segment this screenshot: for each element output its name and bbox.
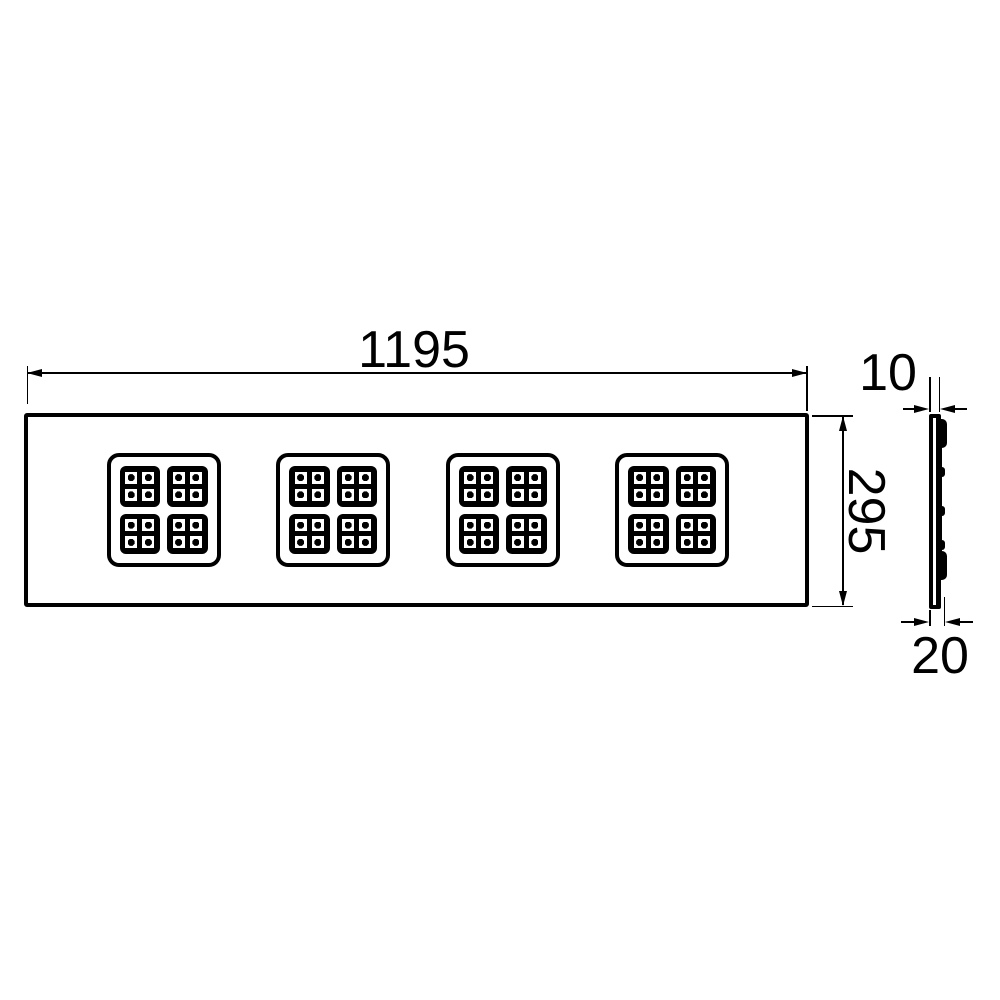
led-star-icon (531, 491, 538, 498)
led-dot (342, 472, 354, 484)
led-star-icon (636, 539, 643, 546)
led-star-icon (701, 539, 708, 546)
led-dot (529, 472, 541, 484)
led-star-icon (484, 491, 491, 498)
led-star-icon (314, 522, 321, 529)
led-dot (295, 536, 307, 548)
led-dot (529, 489, 541, 501)
led-star-icon (175, 474, 182, 481)
led-star-icon (362, 474, 369, 481)
led-dot (481, 489, 493, 501)
dim-depth-leader-right (959, 621, 973, 623)
led-star-icon (362, 522, 369, 529)
dim-width-line (27, 372, 807, 374)
led-dot (634, 489, 646, 501)
led-star-icon (345, 522, 352, 529)
led-dot (295, 519, 307, 531)
dim-width-label: 1195 (358, 324, 470, 376)
led-dot (142, 472, 154, 484)
led-star-icon (653, 522, 660, 529)
led-star-icon (467, 539, 474, 546)
led-star-icon (175, 522, 182, 529)
led-dot (698, 519, 710, 531)
led-dot (342, 519, 354, 531)
led-dot (698, 489, 710, 501)
led-module (676, 466, 717, 507)
led-star-icon (684, 539, 691, 546)
led-dot (634, 536, 646, 548)
led-dot (512, 472, 524, 484)
led-module (289, 514, 330, 555)
led-dot (312, 519, 324, 531)
led-star-icon (145, 474, 152, 481)
led-module (628, 514, 669, 555)
led-dot (698, 472, 710, 484)
led-star-icon (345, 539, 352, 546)
led-dot (529, 519, 541, 531)
led-star-icon (636, 522, 643, 529)
led-dot (634, 472, 646, 484)
led-star-icon (636, 491, 643, 498)
led-dot (681, 472, 693, 484)
arrowhead-right-icon (914, 405, 929, 413)
led-dot (342, 489, 354, 501)
led-dot (681, 536, 693, 548)
led-cluster (446, 453, 560, 567)
led-star-icon (192, 491, 199, 498)
led-star-icon (684, 522, 691, 529)
led-star-icon (467, 522, 474, 529)
led-module (506, 466, 547, 507)
led-dot (295, 472, 307, 484)
led-module (459, 466, 500, 507)
arrowhead-left-icon (940, 405, 955, 413)
led-star-icon (362, 539, 369, 546)
side-profile-top-clip (939, 419, 947, 448)
led-star-icon (531, 474, 538, 481)
led-star-icon (175, 539, 182, 546)
led-star-icon (531, 522, 538, 529)
led-dot (651, 489, 663, 501)
technical-drawing-canvas: 1195 295 10 20 (0, 0, 1000, 1000)
led-star-icon (128, 539, 135, 546)
led-dot (295, 489, 307, 501)
led-module (337, 514, 378, 555)
led-dot (173, 472, 185, 484)
led-dot (481, 536, 493, 548)
led-star-icon (701, 522, 708, 529)
led-dot (312, 536, 324, 548)
led-dot (651, 536, 663, 548)
led-dot (190, 489, 202, 501)
dim-depth-label: 20 (911, 630, 969, 682)
led-cluster (615, 453, 729, 567)
led-dot (512, 536, 524, 548)
led-dot (173, 489, 185, 501)
led-dot (359, 472, 371, 484)
led-star-icon (192, 474, 199, 481)
arrowhead-left-icon (27, 369, 42, 377)
led-dot (512, 519, 524, 531)
arrowhead-up-icon (839, 416, 847, 431)
led-star-icon (145, 522, 152, 529)
led-dot (512, 489, 524, 501)
dim-height-extension-top (812, 415, 853, 417)
led-star-icon (684, 474, 691, 481)
led-dot (125, 472, 137, 484)
led-star-icon (314, 539, 321, 546)
led-dot (142, 519, 154, 531)
led-dot (359, 489, 371, 501)
led-dot (359, 536, 371, 548)
side-profile-face-line (933, 418, 936, 605)
led-dot (698, 536, 710, 548)
led-dot (651, 472, 663, 484)
led-dot (312, 489, 324, 501)
led-module (459, 514, 500, 555)
led-star-icon (653, 539, 660, 546)
led-dot (125, 489, 137, 501)
led-dot (529, 536, 541, 548)
led-star-icon (345, 491, 352, 498)
led-dot (190, 472, 202, 484)
led-star-icon (297, 539, 304, 546)
dim-thickness-leader-right (953, 408, 967, 410)
led-dot (125, 519, 137, 531)
dim-thickness-extension-left (929, 377, 931, 412)
side-profile-nub-lower (939, 540, 945, 550)
panel-front-view (24, 413, 809, 607)
dim-height-extension-bottom (812, 606, 853, 608)
led-dot (190, 519, 202, 531)
side-profile-nub-middle (939, 506, 945, 516)
led-star-icon (514, 522, 521, 529)
led-star-icon (484, 522, 491, 529)
led-module (289, 466, 330, 507)
led-dot (464, 489, 476, 501)
led-dot (481, 519, 493, 531)
led-star-icon (128, 491, 135, 498)
led-module (676, 514, 717, 555)
led-module (628, 466, 669, 507)
led-dot (681, 489, 693, 501)
arrowhead-down-icon (839, 591, 847, 606)
led-dot (464, 519, 476, 531)
led-star-icon (145, 539, 152, 546)
led-dot (142, 489, 154, 501)
led-module (120, 466, 161, 507)
led-dot (359, 519, 371, 531)
led-module (120, 514, 161, 555)
dim-height-label: 295 (840, 468, 892, 555)
led-dot (634, 519, 646, 531)
led-star-icon (362, 491, 369, 498)
led-cluster (107, 453, 221, 567)
dim-width-extension-left (27, 366, 29, 404)
dim-width-extension-right (806, 366, 808, 411)
led-star-icon (297, 474, 304, 481)
led-star-icon (297, 491, 304, 498)
led-star-icon (297, 522, 304, 529)
led-star-icon (653, 474, 660, 481)
led-dot (312, 472, 324, 484)
led-star-icon (484, 474, 491, 481)
led-dot (173, 536, 185, 548)
led-star-icon (175, 491, 182, 498)
side-profile-bottom-clip (939, 551, 947, 580)
led-star-icon (145, 491, 152, 498)
led-dot (464, 472, 476, 484)
led-star-icon (484, 539, 491, 546)
dim-depth-leader-left (901, 621, 915, 623)
led-star-icon (514, 539, 521, 546)
led-module (167, 514, 208, 555)
led-star-icon (345, 474, 352, 481)
dim-depth-extension-left (929, 610, 931, 626)
led-module (506, 514, 547, 555)
led-dot (190, 536, 202, 548)
led-star-icon (128, 522, 135, 529)
led-star-icon (701, 491, 708, 498)
led-star-icon (653, 491, 660, 498)
arrowhead-right-icon (914, 618, 929, 626)
arrowhead-right-icon (792, 369, 807, 377)
led-module (337, 466, 378, 507)
led-dot (142, 536, 154, 548)
led-star-icon (514, 491, 521, 498)
side-profile-rail (939, 448, 942, 552)
led-star-icon (701, 474, 708, 481)
led-star-icon (192, 539, 199, 546)
led-dot (464, 536, 476, 548)
led-dot (342, 536, 354, 548)
led-dot (173, 519, 185, 531)
led-star-icon (192, 522, 199, 529)
led-star-icon (467, 474, 474, 481)
led-star-icon (314, 474, 321, 481)
led-dot (481, 472, 493, 484)
led-star-icon (514, 474, 521, 481)
led-dot (681, 519, 693, 531)
led-dot (651, 519, 663, 531)
led-star-icon (531, 539, 538, 546)
led-module (167, 466, 208, 507)
led-star-icon (636, 474, 643, 481)
arrowhead-left-icon (945, 618, 960, 626)
led-star-icon (467, 491, 474, 498)
led-star-icon (684, 491, 691, 498)
dim-thickness-label: 10 (859, 347, 917, 399)
led-star-icon (128, 474, 135, 481)
side-profile-nub-upper (939, 467, 945, 477)
led-cluster (276, 453, 390, 567)
led-star-icon (314, 491, 321, 498)
led-dot (125, 536, 137, 548)
